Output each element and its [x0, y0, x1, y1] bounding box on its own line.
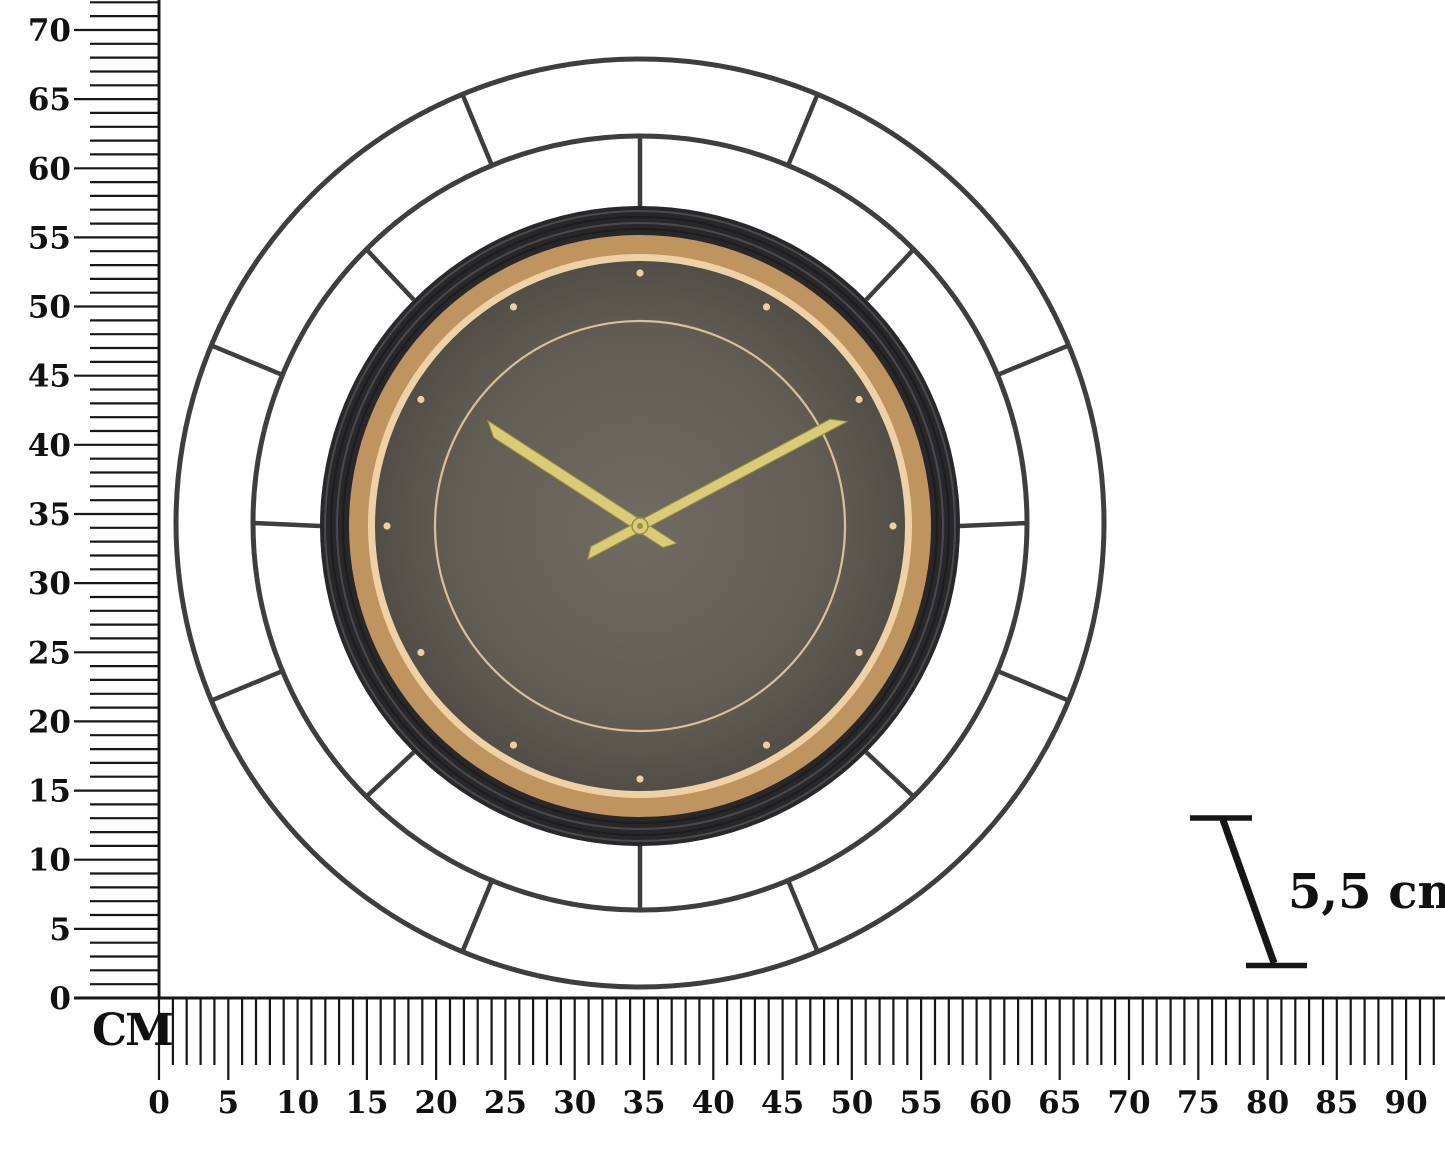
hour-marker-dot [856, 649, 863, 656]
v-tick-label: 35 [28, 497, 71, 533]
product-measurement-image: 0510152025303540455055606570051015202530… [0, 0, 1445, 1150]
h-tick-label: 75 [1177, 1085, 1220, 1121]
h-tick-label: 45 [761, 1085, 804, 1121]
depth-diagonal [1223, 820, 1274, 963]
scene-graphic: 0510152025303540455055606570051015202530… [0, 0, 1445, 1150]
hour-marker-dot [510, 742, 517, 749]
h-tick-label: 30 [553, 1085, 596, 1121]
h-tick-label: 25 [484, 1085, 527, 1121]
hour-marker-dot [763, 303, 770, 310]
horizontal-ruler-labels: 051015202530354045505560657075808590 [148, 1085, 1427, 1121]
v-tick-label: 20 [28, 704, 71, 740]
h-tick-label: 10 [276, 1085, 319, 1121]
v-tick-label: 30 [28, 566, 71, 602]
depth-measurement-label: 5,5 cm [1288, 864, 1445, 920]
h-tick-label: 85 [1315, 1085, 1358, 1121]
h-tick-label: 35 [622, 1085, 665, 1121]
v-tick-label: 50 [28, 290, 71, 326]
hour-marker-dot [417, 396, 424, 403]
hour-marker-dot [383, 522, 390, 529]
hour-marker-dot [856, 396, 863, 403]
v-tick-label: 60 [28, 151, 71, 187]
wall-clock [176, 59, 1104, 987]
v-tick-label: 5 [49, 912, 71, 948]
v-tick-label: 65 [28, 82, 71, 118]
hour-marker-dot [510, 303, 517, 310]
h-tick-label: 0 [148, 1085, 170, 1121]
hour-marker-dot [636, 269, 643, 276]
vertical-ruler [74, 0, 159, 998]
h-tick-label: 40 [692, 1085, 735, 1121]
v-tick-label: 10 [28, 843, 71, 879]
v-tick-label: 25 [28, 635, 71, 671]
v-tick-label: 40 [28, 428, 71, 464]
h-tick-label: 50 [830, 1085, 873, 1121]
hour-marker-dot [636, 775, 643, 782]
h-tick-label: 5 [218, 1085, 240, 1121]
v-tick-label: 45 [28, 359, 71, 395]
h-tick-label: 20 [415, 1085, 458, 1121]
horizontal-ruler [74, 998, 1445, 1080]
hour-marker-dot [889, 522, 896, 529]
hour-marker-dot [763, 742, 770, 749]
v-tick-label: 55 [28, 220, 71, 256]
ruler-unit-label: CM [92, 1005, 172, 1056]
h-tick-label: 55 [900, 1085, 943, 1121]
h-tick-label: 90 [1385, 1085, 1428, 1121]
vertical-ruler-labels: 0510152025303540455055606570 [28, 13, 71, 1017]
v-tick-label: 70 [28, 13, 71, 49]
h-tick-label: 80 [1246, 1085, 1289, 1121]
hour-marker-dot [417, 649, 424, 656]
h-tick-label: 70 [1107, 1085, 1150, 1121]
h-tick-label: 15 [345, 1085, 388, 1121]
h-tick-label: 65 [1038, 1085, 1081, 1121]
h-tick-label: 60 [969, 1085, 1012, 1121]
v-tick-label: 0 [49, 981, 71, 1017]
v-tick-label: 15 [28, 774, 71, 810]
